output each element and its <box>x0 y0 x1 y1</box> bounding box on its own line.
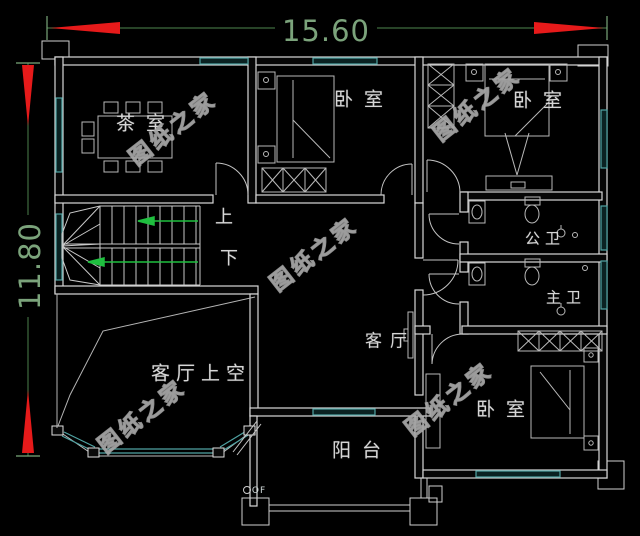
stair-direction-arrows <box>88 217 198 266</box>
room-label-bedroom-bottom: 卧室 <box>476 395 536 422</box>
arrow-top-icon <box>22 65 34 126</box>
room-label-living-room: 客厅 <box>365 327 415 352</box>
dimension-height-text: 11.80 <box>15 215 45 317</box>
stairs-up-label: 上 <box>215 203 233 229</box>
floor-plan-canvas: 15.60 11.80 茶室 卧室 卧室 卧室 公卫 主卫 客厅 客厅上空 阳台… <box>0 0 640 536</box>
arrow-bottom-icon <box>22 390 34 453</box>
arrow-right-icon <box>534 22 604 34</box>
floor-plan-drawing <box>0 0 640 536</box>
room-label-public-bath: 公卫 <box>525 228 565 249</box>
room-label-bedroom-right: 卧室 <box>513 86 573 113</box>
room-label-bedroom-top: 卧室 <box>334 85 394 112</box>
room-label-balcony: 阳台 <box>332 436 392 463</box>
dimension-width-text: 15.60 <box>275 16 377 46</box>
bedroom-top-furniture <box>258 72 334 192</box>
stairs <box>62 206 200 285</box>
stairs-down-label: 下 <box>220 244 238 270</box>
arrow-left-icon <box>50 22 120 34</box>
balcony-structure <box>242 478 442 525</box>
room-label-master-bath: 主卫 <box>546 287 586 308</box>
bay-window <box>52 426 255 457</box>
drain-label: OF <box>252 486 266 496</box>
